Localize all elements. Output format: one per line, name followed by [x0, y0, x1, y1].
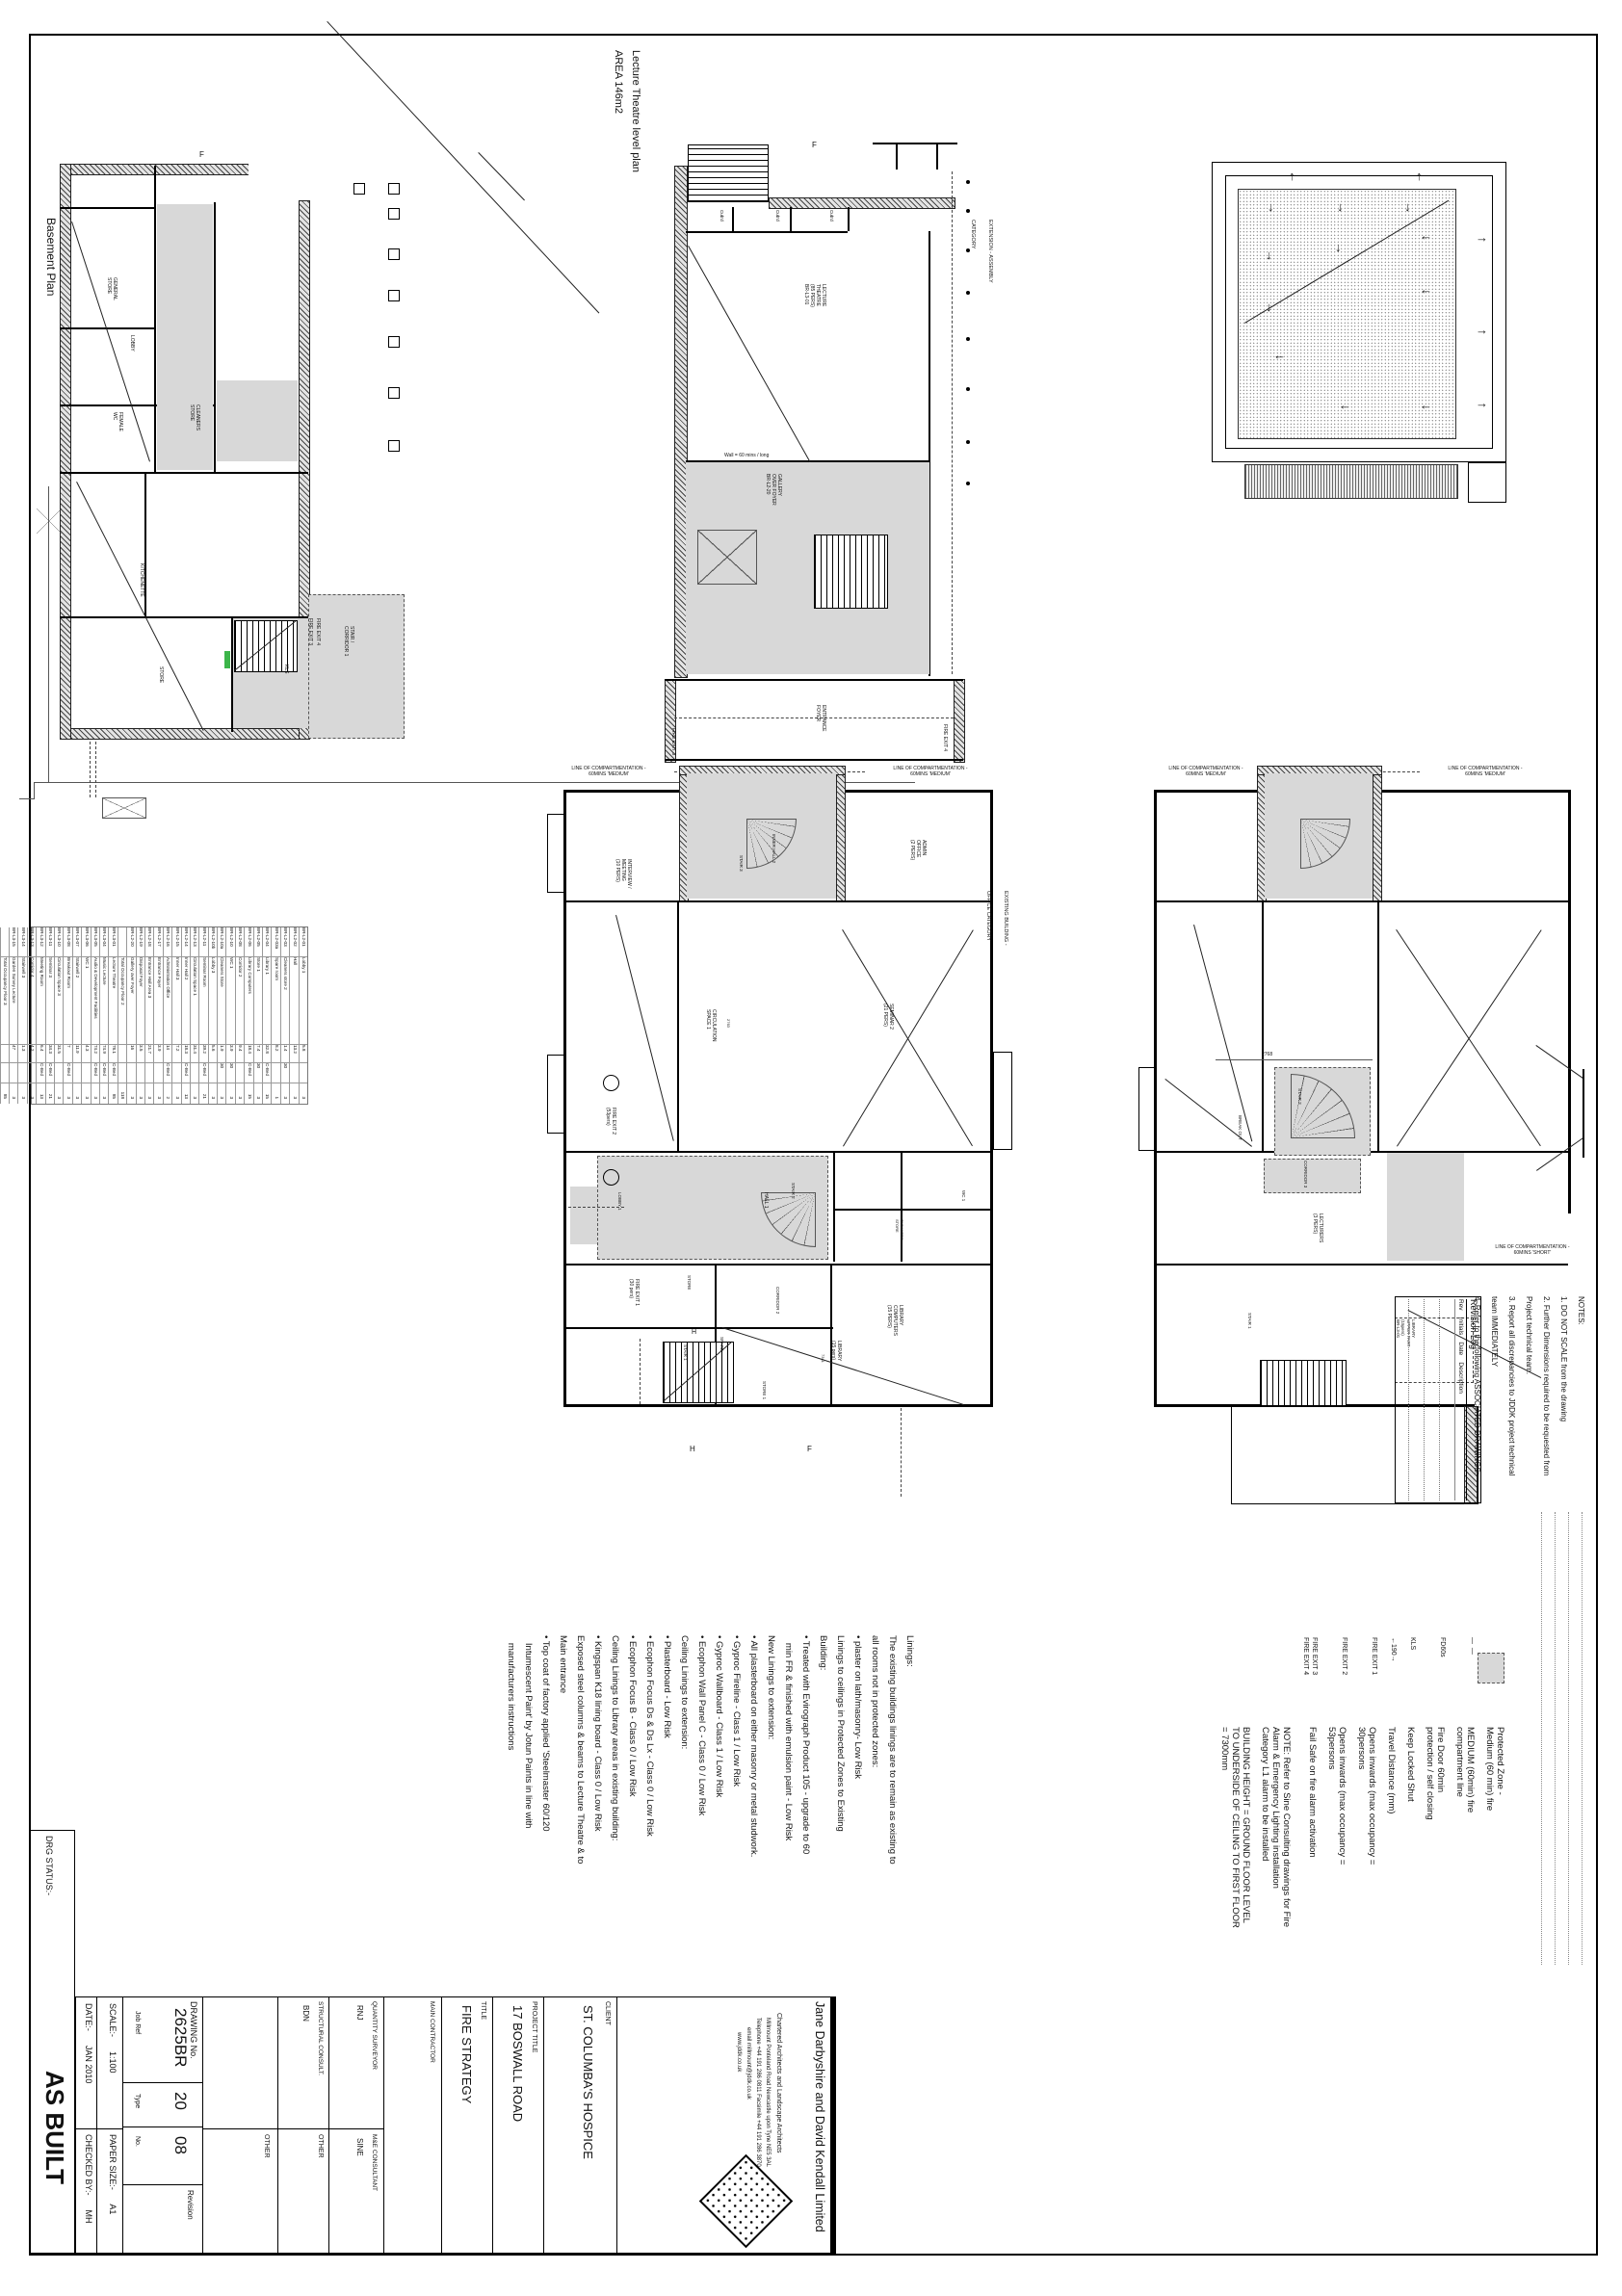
occupancy-row: BR-L2-20 Gallery over Foyer 16 3	[126, 927, 135, 1104]
wall-line	[563, 1264, 990, 1265]
room-ref: BR-L3-10	[55, 927, 63, 957]
slope-arrow-down-icon: ↓	[1335, 241, 1342, 253]
room-name: Corridor 2	[236, 957, 244, 1045]
legend-item: ←190→ Travel Distance (mm)	[1386, 1637, 1397, 2001]
grid-letter: F	[812, 141, 817, 150]
tb-main-contractor: MAIN CONTRACTOR	[428, 2001, 435, 2063]
fire-exit-label: FIRE EXIT 4	[942, 724, 948, 751]
grid-square	[388, 440, 400, 452]
tb-divider	[492, 1996, 493, 2254]
occupancy-row: BR-L3-01 Lecture Theatre 78.1 C-Bed 85	[108, 927, 117, 1104]
label-text: EXTENSION - ASSEMBLY CATEGORY	[970, 220, 993, 283]
wall-note: Wall = 60 mins / long	[724, 453, 769, 458]
room-label: STAIR 2	[791, 1183, 796, 1199]
protected-zone	[1264, 1159, 1361, 1193]
occupancy-row: BR-L2-16 Administration Office 14 C-Bed …	[163, 927, 171, 1104]
room-flag: C-Bed	[92, 1063, 99, 1083]
fire-exit-label: FIRE EXIT 1 (30 pers)	[628, 1279, 640, 1306]
room-flag	[145, 1063, 153, 1083]
room-label: CLEANERS STORE	[894, 1219, 903, 1240]
occupancy-row: BR-L2-14 Inner Hall 2 18.3 C-Bed 13	[181, 927, 190, 1104]
slope-arrow-right-icon: →	[1476, 231, 1488, 244]
room-name: WC 1	[82, 957, 90, 1045]
tb-struct: BDN	[301, 2005, 310, 2022]
legend-item: FIRE EXIT 1 Opens inwards (max occupancy…	[1356, 1637, 1377, 2001]
occupancy-row: BR-L2-06 Library Computers 18.4 C-Bed 15	[244, 927, 252, 1104]
room-label: STAIR 3	[739, 855, 744, 872]
room-ref: BR-L3-06	[82, 927, 90, 957]
tb-title: FIRE STRATEGY	[458, 2005, 474, 2103]
room-ref: BR-L2-04	[263, 927, 271, 957]
room-area	[118, 1045, 126, 1063]
room-label: SPARE	[719, 1337, 724, 1351]
wall-line	[1262, 902, 1264, 1151]
wall-line	[1154, 790, 1262, 793]
tb-divider	[75, 2128, 122, 2129]
occupancy-row: BR-L3-11 Seminar 3 34.3 C-Bed 21	[45, 927, 54, 1104]
room-ref: BR-L3-13	[28, 927, 36, 957]
room-occupancy: 15	[245, 1083, 252, 1099]
room-area: 7.4	[254, 1045, 262, 1063]
occupancy-row: BR-L2-01 Lobby 1 5.8 3	[299, 927, 307, 1104]
legend-item: Protected Zone - Medium (60 min) fire	[1484, 1637, 1505, 2001]
room-name: Breakout Room	[64, 957, 71, 1045]
legend-symbol: FIRE EXIT 1	[1369, 1637, 1377, 1720]
room-occupancy: 3	[254, 1083, 262, 1099]
room-label: STAIR / CORRIDOR 1	[343, 626, 354, 656]
room-ref: BR-L3-04	[100, 927, 108, 957]
drawing-sheet: Basement Plan GENERAL STORE LOBBY FEMALE…	[0, 0, 1622, 2296]
room-name: Administration Office	[164, 957, 171, 1045]
room-flag	[19, 1063, 27, 1083]
revision-log-headers: Rev Initials Date Description	[1454, 1299, 1466, 1500]
room-flag: C-Bed	[100, 1063, 108, 1083]
room-name: Cleaners Store	[218, 957, 225, 1045]
room-ref: BR-L2-11	[199, 927, 207, 957]
room-occupancy: 3	[172, 1083, 180, 1099]
room-ref: BR-L2-10a	[218, 927, 225, 957]
compartmentation-label: LINE OF COMPARTMENTATION - 60MINS 'MEDIU…	[1422, 766, 1549, 778]
column-dot	[966, 440, 970, 444]
room-label: STORE 1	[762, 1381, 767, 1399]
tb-job-ref: 2625BR	[170, 2008, 190, 2067]
occupancy-row: BR-L3-05 Audio & Development Facilities …	[91, 927, 99, 1104]
firm-line: Telephone +44 191 286 0811 Facsimile +44…	[754, 2018, 761, 2167]
room-area: 3.9	[154, 1045, 162, 1063]
room-area: 14	[164, 1045, 171, 1063]
room-area: 1.3	[19, 1045, 27, 1063]
room-name: Seminar Room	[199, 957, 207, 1045]
room-occupancy: 118	[118, 1083, 126, 1099]
legend-text: Opens inwards (max occupancy = 53persons	[1326, 1727, 1347, 1865]
room-name: Stairwell 2	[73, 957, 81, 1045]
room-area: 4.2	[28, 1045, 36, 1063]
wall-line	[665, 679, 963, 681]
room-flag	[73, 1063, 81, 1083]
room-occupancy: 3	[10, 1083, 17, 1099]
room-occupancy: 3	[137, 1083, 144, 1099]
drg-status-label: DRG STATUS:-	[43, 1836, 54, 1895]
room-occupancy: 3	[55, 1083, 63, 1099]
occupancy-row: BR-L2-02 Hall 13.2 3	[289, 927, 298, 1104]
room-flag	[137, 1063, 144, 1083]
room-label: STAIR 1	[683, 1344, 688, 1361]
fire-exit-label: FIRE EXIT 3	[670, 728, 676, 755]
room-flag	[10, 1063, 17, 1083]
slope-arrow-left-icon: ←	[1273, 349, 1286, 361]
occupancy-row: BR-L2-03a Spare room 8.2 1	[271, 927, 279, 1104]
occupancy-row: BR-L2-13 Circulation Space 1 31.4 3	[190, 927, 198, 1104]
room-name: Lobby 3	[209, 957, 217, 1045]
fire-legend: Protected Zone - Medium (60 min) fire — …	[1147, 1637, 1505, 2001]
lecture-plan-area: AREA 146m2	[612, 50, 624, 114]
room-label: HALL 1	[763, 1192, 769, 1209]
room-name: Circulation Space 1	[191, 957, 198, 1045]
tb-divider	[328, 1996, 329, 2254]
room-name: Gallery over Foyer	[127, 957, 135, 1045]
exit-arrow-line	[640, 1339, 641, 1404]
room-name: Entrance Hall Area 3	[145, 957, 153, 1045]
room-name: WC 1	[226, 957, 234, 1045]
room-label: KITCHENETTE	[139, 563, 144, 597]
room-occupancy: 1	[272, 1083, 279, 1099]
tb-type-label: Type	[133, 2094, 141, 2108]
column-dot	[966, 180, 970, 184]
tb-other: OTHER	[316, 2134, 324, 2158]
slope-arrow-down-icon: ↓	[1266, 300, 1272, 313]
room-ref: BR-L2-08	[236, 927, 244, 957]
tb-no: 08	[170, 2136, 190, 2154]
wall-line	[848, 207, 850, 231]
label-text: EXISTING BUILDING - OFFICE CATEGORY	[985, 891, 1008, 946]
column-dot	[966, 209, 970, 213]
room-label: CORRIDOR 3	[1303, 1161, 1308, 1187]
tb-divider	[543, 1996, 544, 2254]
wall-line	[686, 231, 848, 233]
occupancy-row: BR-L3-06 WC 1 4.3 3	[81, 927, 90, 1104]
revision-row	[1439, 1299, 1454, 1500]
room-label: INTERVIEW / MEETING (10 PERS)	[615, 859, 632, 888]
protected-zone	[217, 380, 298, 461]
basement-wall	[60, 164, 71, 740]
room-area: 78.1	[109, 1045, 117, 1063]
room-label: GENERAL STORE	[106, 277, 118, 300]
room-occupancy: 3	[191, 1083, 198, 1099]
room-label: CORRIDOR 2	[775, 1287, 780, 1314]
room-area: 9.4	[236, 1045, 244, 1063]
associated-drawing-rule	[1568, 1512, 1569, 1965]
wall-line	[1154, 1264, 1568, 1265]
tb-divider	[202, 2128, 383, 2129]
room-name: Entrance Foyer	[154, 957, 162, 1045]
room-flag: C-Bed	[46, 1063, 54, 1083]
room-name: Library 1	[263, 957, 271, 1045]
slope-arrow-down-icon: ↓	[1266, 248, 1272, 261]
room-area: 47	[10, 1045, 17, 1063]
room-area: 6.4	[37, 1045, 44, 1063]
room-area: 5.8	[300, 1045, 307, 1063]
room-ref: BR-L2-05	[254, 927, 262, 957]
room-area: 16	[127, 1045, 135, 1063]
room-flag	[272, 1063, 279, 1083]
bay-window	[547, 1055, 565, 1134]
room-ref: BR-L2-10b	[209, 927, 217, 957]
room-name: Hall	[290, 957, 298, 1045]
tree-circle	[603, 1075, 619, 1091]
room-label: ADMIN OFFICE (2 PERS)	[909, 840, 927, 860]
room-occupancy: 3	[154, 1083, 162, 1099]
room-area: 11.9	[73, 1045, 81, 1063]
room-area: 18.3	[182, 1045, 190, 1063]
room-area	[1, 1045, 9, 1063]
room-occupancy: 3	[64, 1083, 71, 1099]
tb-divider	[202, 1996, 203, 2254]
occupancy-row: BR-L2-11 Seminar Room 39.2 C-Bed 21	[198, 927, 207, 1104]
room-occupancy: 3	[100, 1083, 108, 1099]
room-flag: 30	[281, 1063, 289, 1083]
room-area: 31.4	[191, 1045, 198, 1063]
travel-line	[674, 717, 954, 718]
room-occupancy: 3	[127, 1083, 135, 1099]
room-name: Disposal Foyer	[137, 957, 144, 1045]
occupancy-row: BR-L3-04 Music Lecture 74.9 C-Bed 3	[99, 927, 108, 1104]
tb-qs: RNJ	[354, 2005, 364, 2021]
tb-title-label: TITLE	[479, 2001, 486, 2020]
grid-square	[388, 387, 400, 399]
legend-text: MEDIUM (60min) fire compartment line	[1454, 1727, 1476, 1813]
legend-text: NOTE: Refer to Sine Consulting drawings …	[1261, 1727, 1293, 1927]
wall-line	[830, 1265, 832, 1404]
entrance-wall	[836, 766, 846, 902]
crossed-box	[102, 797, 146, 819]
occupancy-row: Total Occupancy Floor 3 85	[0, 927, 9, 1104]
protected-zone	[157, 204, 213, 470]
room-ref: BR-L2-01	[300, 927, 307, 957]
protected-zone	[1387, 1153, 1464, 1261]
room-ref: BR-L3-01	[109, 927, 117, 957]
tb-job-ref-label: Job Ref	[133, 2011, 141, 2034]
room-label: CLEANERS STORE	[189, 404, 200, 430]
slope-arrow-left-icon: ←	[1420, 229, 1432, 242]
travel-dim: 2768	[1262, 1052, 1272, 1057]
slope-arrow-down-icon: ↓	[1337, 200, 1344, 213]
fire-exit-label: FIRE EXIT 2 (53pers)	[605, 1108, 616, 1135]
revision-log: Revision Log Rev Initials Date Descripti…	[1395, 1296, 1481, 1503]
grid-square	[388, 248, 400, 260]
room-flag	[290, 1063, 298, 1083]
room-label: LOBBY	[129, 335, 135, 352]
wall-line	[833, 1209, 990, 1211]
compartmentation-label: LINE OF COMPARTMENTATION - 60MINS 'MEDIU…	[1142, 766, 1269, 778]
room-occupancy: 85	[1, 1083, 9, 1099]
room-ref: BR-L2-15	[172, 927, 180, 957]
room-ref: BR-L3-15	[10, 927, 17, 957]
wall-line	[563, 1404, 993, 1407]
compartmentation-label: LINE OF COMPARTMENTATION - 60MINS 'MEDIU…	[545, 766, 672, 778]
room-name: Garden Survey Lecture	[10, 957, 17, 1045]
room-occupancy: 3	[300, 1083, 307, 1099]
occupancy-row: BR-L3-12 Meeting Room 6.4 C-Bed 13	[36, 927, 44, 1104]
legend-item: FIRE EXIT 2 Opens inwards (max occupancy…	[1326, 1637, 1347, 2001]
travel-dim: 7341	[820, 1354, 824, 1363]
room-occupancy: 21	[46, 1083, 54, 1099]
wall-line	[833, 1153, 835, 1262]
dim-line	[1216, 1059, 1373, 1060]
linings-note: Linings: The existing buildings linings …	[571, 1635, 920, 1945]
wall-line	[60, 207, 154, 209]
gallery-stair	[814, 535, 888, 609]
room-flag	[154, 1063, 162, 1083]
tb-divider	[122, 2126, 202, 2127]
legend-symbol: ←190→	[1388, 1637, 1397, 1720]
tree-circle	[603, 1169, 619, 1186]
room-flag	[28, 1063, 36, 1083]
room-area: 13.2	[290, 1045, 298, 1063]
room-area: 34.3	[46, 1045, 54, 1063]
room-occupancy: 3	[73, 1083, 81, 1099]
legend-symbol: — —	[1467, 1637, 1476, 1720]
room-area: 1.4	[281, 1045, 289, 1063]
wall-line	[1377, 902, 1379, 1151]
room-label: STORE	[158, 666, 164, 683]
room-label: STAIR 1	[1247, 1313, 1252, 1329]
revision-log-title: Revision Log	[1466, 1299, 1478, 1500]
room-occupancy: 3	[145, 1083, 153, 1099]
room-occupancy: 3	[92, 1083, 99, 1099]
slope-arrow-left-icon: ←	[1339, 399, 1351, 411]
occupancy-row: BR-L3-14 Stairwell 3 1.3 3	[18, 927, 27, 1104]
drg-status-value: AS BUILT	[39, 2071, 69, 2184]
room-name: Inner Hall 2	[182, 957, 190, 1045]
occupancy-row: BR-L2-03 Cleaners store 2 1.4 30 3	[280, 927, 289, 1104]
wall-line	[790, 207, 792, 231]
room-area: 74.9	[100, 1045, 108, 1063]
tb-paper: PAPER SIZE:- A1	[107, 2134, 118, 2214]
room-flag: 30	[218, 1063, 225, 1083]
room-ref: BR-L2-16	[164, 927, 171, 957]
grid-letter: F	[807, 1445, 812, 1454]
occupancy-row: BR-L2-17 Entrance Foyer 3.9 3	[153, 927, 162, 1104]
room-area: 32.8	[263, 1045, 271, 1063]
legend-text: BUILDING HEIGHT = GROUND FLOOR LEVEL TO …	[1220, 1727, 1252, 1928]
room-flag: C-Bed	[37, 1063, 44, 1083]
occupancy-row: BR-L2-08 Corridor 2 9.4 3	[235, 927, 244, 1104]
bay-window	[993, 1052, 1012, 1150]
tb-divider	[616, 1996, 617, 2254]
wall-line	[677, 902, 679, 1151]
fire-exit-label: FIRE EXIT 4	[315, 618, 321, 645]
room-occupancy: 3	[209, 1083, 217, 1099]
firm-name: Jane Darbyshire and David Kendall Limite…	[812, 2001, 826, 2232]
tb-project: 17 BOSWALL ROAD	[510, 2005, 525, 2122]
legend-item: BUILDING HEIGHT = GROUND FLOOR LEVEL TO …	[1220, 1637, 1252, 2001]
room-label: STORE	[687, 1275, 692, 1290]
room-occupancy: 21	[199, 1083, 207, 1099]
protected-zone	[308, 594, 405, 739]
room-name: Total Occupancy Floor 3	[1, 957, 9, 1045]
room-name: Library Computers	[245, 957, 252, 1045]
room-flag	[1, 1063, 9, 1083]
tb-divider	[441, 1996, 442, 2254]
legend-text: Keep Locked Shut	[1405, 1727, 1416, 1802]
room-flag: C-Bed	[263, 1063, 271, 1083]
room-label: LIBRARY (15 pers)	[830, 1341, 842, 1361]
grid-square	[388, 183, 400, 195]
occupancy-row: BR-L2-04 Library 1 32.8 C-Bed 15	[262, 927, 271, 1104]
room-name: Cleaners store 2	[281, 957, 289, 1045]
room-label: INNER HALL 2	[772, 834, 776, 863]
room-ref: BR-L2-02	[290, 927, 298, 957]
tb-scale: SCALE:- 1:100	[107, 2003, 118, 2074]
tb-divider	[122, 1996, 123, 2254]
room-flag	[55, 1063, 63, 1083]
room-flag	[118, 1063, 126, 1083]
legend-item: NOTE: Refer to Sine Consulting drawings …	[1261, 1637, 1293, 2001]
slope-arrow-left-icon: ←	[1420, 283, 1432, 296]
legend-text: Travel Distance (mm)	[1386, 1727, 1397, 1813]
room-ref: BR-L2-10	[226, 927, 234, 957]
wall-line	[1568, 790, 1571, 1213]
room-area: 8.2	[272, 1045, 279, 1063]
room-name: Spare room	[272, 957, 279, 1045]
cupboard-label: Cub'd	[775, 210, 780, 222]
slope-arrow-left-icon: ←	[1420, 399, 1432, 411]
room-occupancy: 3	[281, 1083, 289, 1099]
legend-item: — — MEDIUM (60min) fire compartment line	[1454, 1637, 1476, 2001]
column-dot	[966, 337, 970, 341]
occupancy-row: BR-L2-10a Cleaners Store 1.9 30 3	[217, 927, 225, 1104]
occupancy-row: BR-L3-15 Garden Survey Lecture 47 3	[9, 927, 17, 1104]
room-flag	[209, 1063, 217, 1083]
room-area: 5.6	[209, 1045, 217, 1063]
room-label: BREAK OUT	[1238, 1115, 1243, 1140]
firm-line: Millmount Ponteland Road Newcastle upon …	[764, 2018, 771, 2167]
room-ref: BR-L3-14	[19, 927, 27, 957]
legend-symbol: FD60s	[1437, 1637, 1446, 1720]
room-ref: BR-L2-19	[137, 927, 144, 957]
tb-struct-label: STRUCTURAL CONSULT.	[316, 2001, 324, 2075]
room-label: FEMALE WC	[112, 412, 123, 431]
tb-checked: CHECKED BY:- MH	[83, 2134, 93, 2224]
legend-item: KLS Keep Locked Shut	[1405, 1637, 1416, 2001]
room-area: 31.5	[55, 1045, 63, 1063]
tb-other: OTHER	[262, 2134, 270, 2158]
room-area: 21.7	[145, 1045, 153, 1063]
grid-letter: F	[199, 150, 204, 160]
room-area: 4.3	[82, 1045, 90, 1063]
slope-arrow-up-icon: ↑	[1416, 170, 1423, 182]
assembly-boundary	[952, 171, 953, 674]
wall-line	[1375, 790, 1571, 793]
wall-line	[214, 202, 216, 472]
room-area: 39.2	[199, 1045, 207, 1063]
room-ref: BR-L3-07	[73, 927, 81, 957]
tb-no-label: No.	[133, 2136, 141, 2147]
grid-square	[388, 336, 400, 348]
slope-arrow-up-icon: ↑	[1289, 170, 1295, 182]
roof-box	[1468, 462, 1506, 503]
room-name: Total Occupancy Floor 2	[118, 957, 126, 1045]
room-ref: BR-L3-12	[37, 927, 44, 957]
legend-item: FD60s Fire Door 60min protection / self …	[1425, 1637, 1446, 2001]
room-flag: C-Bed	[64, 1063, 71, 1083]
exit-arrow-line	[568, 1207, 624, 1208]
room-occupancy: 3	[28, 1083, 36, 1099]
room-name: Music Lecture	[100, 957, 108, 1045]
grid-square	[388, 208, 400, 220]
room-label: WC 1	[961, 1190, 966, 1201]
room-ref: BR-L2-06	[245, 927, 252, 957]
